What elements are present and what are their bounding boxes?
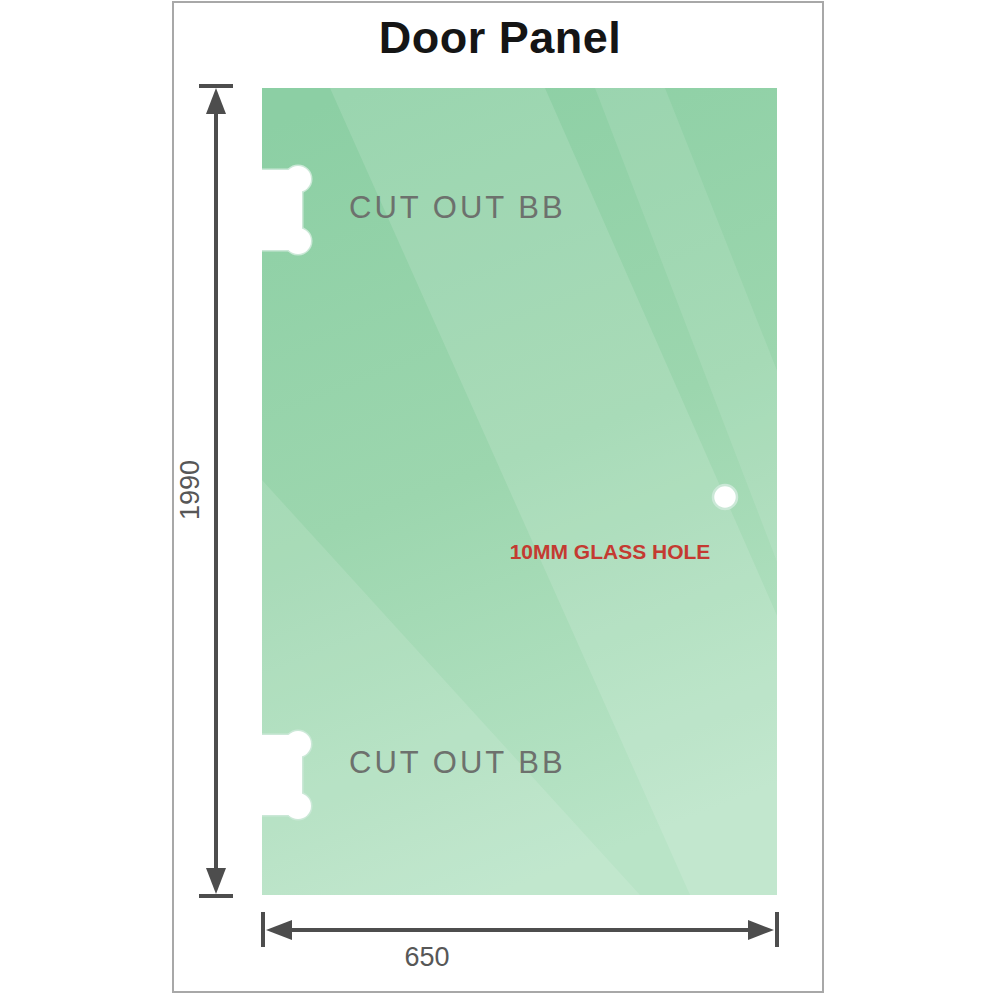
height-dim-arrow-bottom [206,868,226,894]
cutout-top-label: CUT OUT BB [349,190,566,225]
width-dim-arrow-left [266,920,292,940]
page-title: Door Panel [172,12,828,64]
diagram-svg: CUT OUT BB CUT OUT BB 10MM GLASS HOLE 19… [0,0,1000,1000]
height-dim-arrow-top [206,88,226,114]
glass-hole [713,485,737,509]
glass-hole-label: 10MM GLASS HOLE [510,540,711,563]
width-dim-arrow-right [748,920,774,940]
hinge-cutout-top [258,166,311,254]
width-dim-label: 650 [404,942,449,972]
cutout-bottom-label: CUT OUT BB [349,745,566,780]
height-dim-label: 1990 [175,460,205,520]
width-dimension [263,912,777,947]
hinge-cutout-bottom [258,731,311,819]
